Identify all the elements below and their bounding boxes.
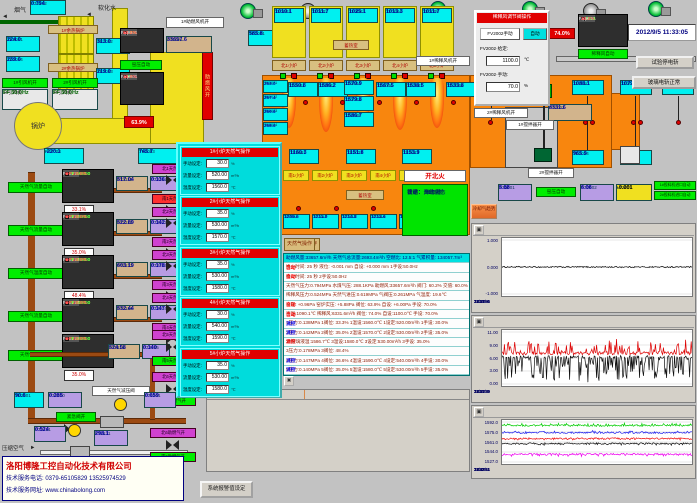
fv2002-manual-button[interactable]: FV2002手动 (480, 28, 520, 40)
setpoint-field[interactable]: 1100.0 (486, 56, 520, 66)
pt3001-indicator: PT30015.88 (498, 184, 532, 201)
manual-set-label: 手动设定: (183, 361, 202, 371)
south-te-indicator: TE20441212.6 (370, 214, 397, 229)
dilution-valve-popup: 稀释风调节阀操作 FV2002手动 自动 FV2002·给定: 1100.0 ℃… (474, 10, 550, 106)
temp-set-field[interactable]: 1590.0 (206, 334, 229, 343)
pv-row: OP78.0% (121, 73, 125, 81)
te2008-indicator: TE20081533.8 (446, 82, 476, 97)
status-row: 天然气压力:0.794MPa 水煤气压: 288.1KPa 助燃风:33657.… (284, 282, 469, 291)
dilution-fan2-on-label: 2#稀释风机开 (474, 108, 528, 118)
valve-icon (166, 440, 179, 450)
temp-set-unit: ℃ (231, 183, 236, 193)
chart-toolbar-icon[interactable]: ▣ (474, 225, 484, 235)
red-dot (631, 120, 636, 125)
red-dot (488, 120, 493, 125)
gas-pipe (0, 20, 58, 24)
y-tick-label: 9.00 (489, 343, 498, 348)
chamber-te-indicator: TE30031025.1 (348, 8, 378, 23)
fan-icon (240, 3, 256, 19)
ft2001-indicator: FT200133657.6 (166, 36, 212, 53)
nav-button[interactable]: 系统报警值设定 (200, 481, 253, 498)
operation-buttons: 稀释风操作引风机操作窑压操作玻璃液位操作天然气操作 (284, 238, 470, 251)
chart-toolbar-icon[interactable]: ▣ (474, 407, 484, 417)
x-tick-label: 11:32:51 (474, 467, 490, 472)
dilution-valve-position: 74.0% (549, 28, 575, 39)
gas-control-loops: 天然气流量自动 FV2211 SPT 1560.0 SPF 520.00 OP … (0, 168, 200, 340)
flow-indicator: FT2211517.04 (116, 176, 148, 191)
manual-set-field[interactable]: 30.0 (206, 310, 229, 319)
scada-furnace-screen: 助燃风开 烟气 ◄ 软化水 ◄ PT22020.794 1#余热锅炉 2#余热锅… (0, 0, 697, 503)
te2007-indicator: TE20071538.5 (406, 82, 436, 97)
ft2002-indicator: FT20028331.6 (548, 104, 592, 121)
flow-set-field[interactable]: 520.00 (206, 171, 229, 180)
regenerator-chamber: TE30011010.1 北1小炉 (272, 6, 306, 86)
temp-set-unit: ℃ (231, 233, 236, 243)
alarm-toolbar: ▤≡?▦▦▦▦⇄○⇅✖ (284, 376, 470, 388)
panel-title: 2#小炉天然气操作 (182, 198, 278, 207)
temp-set-unit: ℃ (231, 385, 236, 395)
setpoint-unit: ℃ (524, 57, 529, 63)
south-burner: 南3小炉 TE20431214.8 (341, 170, 368, 230)
dilution-auto-label: 稀释风自动 (578, 49, 628, 59)
flow-indicator: FT2213603.19 (116, 262, 148, 277)
status-row: 稀释风压力:0.524MPa 天然气进压:0.619MPa 气阀压:0.261M… (284, 291, 469, 300)
pt2003-indicator: PT2003-220.1 (44, 148, 84, 164)
fv2002-auto-button[interactable]: 自动 (523, 28, 547, 40)
status-row: 1压力:0.138MPa 1阀位: 33.3% 1温设:1560.0℃ 1设定:… (284, 319, 469, 328)
chamber-te-indicator: TE30011010.1 (274, 8, 304, 23)
red-dot (451, 100, 456, 105)
south-te-indicator: TE20431214.8 (341, 214, 368, 229)
y-tick-label: 1544.0 (485, 449, 498, 454)
fire-status-panel: 状态：自动状态自动：开北火 设定： 1175 秒计时： 269 秒 (402, 184, 468, 236)
south-te-indicator: TE20421211.0 (312, 214, 339, 229)
x-tick-label: 11:31:56 (474, 299, 490, 304)
temperature-plot (502, 420, 692, 464)
pv-row: OP70.0% (579, 15, 583, 23)
emergency-valve-open-label: 紧急阀开 (56, 412, 96, 422)
pv3001-controller: PV3001 FF80.2%OP80.1% (120, 28, 164, 53)
south-burner-label: 南3小炉 (341, 170, 367, 181)
status-row: 窑压: +0.96Pa 窑炉实压: +5.88Pa 阀位: 63.9% 自设: … (284, 301, 469, 310)
manual-set-label: 手动设定: (183, 159, 202, 169)
te-indicator: TE2072267.4 (263, 94, 288, 107)
flow-set-unit: m³/h (231, 322, 239, 332)
feeder2-auto-label: 2#投料机进口自动 (654, 191, 696, 200)
regenerator-chamber: TE30041013.3 北4小炉 (383, 6, 417, 86)
te2024-indicator: TE2024965.9 (572, 150, 604, 165)
y-tick-label: 1.000 (487, 238, 498, 243)
manual-label: FV2002·手动: (480, 72, 508, 78)
id-fan1-on-label: 1#引风机开 (2, 78, 48, 88)
level-trend-chart: ▤|◀◀◀▶▶▶|✖⊕↔▣ 1.0000.000-1.000 12/09/041… (471, 223, 696, 313)
datetime-display: 2012/9/5 11:33:05 (628, 24, 696, 41)
bottom-nav-buttons: 窑炉控制系统配料控制系统天然气PID参数设定稀释风PID参数设定窑压PID参数设… (200, 481, 697, 500)
status-row: 3#玻璃液温:1586.7℃ 3温设:1580.0℃ 3设定:530.00m³/… (284, 338, 469, 347)
te2021-indicator: TE20211160.3 (289, 149, 319, 164)
temp-set-field[interactable]: 1570.0 (206, 233, 229, 242)
company-info: 洛阳博隆工控自动化技术有限公司 技术服务电话: 0379-65105829 13… (2, 456, 184, 501)
temp-set-label: 温度设定: (183, 233, 202, 243)
manual-set-field[interactable]: 35.0 (206, 361, 229, 370)
temp-set-field[interactable]: 1560.0 (206, 183, 229, 192)
trend-button[interactable]: 冷却气趋势 (471, 204, 497, 219)
stirrer2-on-label: 2#搅拌器开 (528, 168, 574, 178)
peephole-box (620, 146, 640, 164)
alarm-toolbar-icon[interactable]: ✖ (284, 376, 294, 386)
te2064-indicator: TE2064239.0 (6, 56, 40, 72)
operation-button[interactable]: 天然气操作 (284, 238, 315, 251)
waste-heat-boiler-1 (58, 16, 94, 54)
loop5-controller: FV2215 SPT 1580.0 SPF 530.00 OP 20.0% (62, 334, 114, 368)
probe-line (678, 96, 679, 120)
regenerator-chamber: TE30051011.7 北5小炉 (420, 6, 454, 86)
pt2202-indicator: PT22020.794 (30, 0, 66, 15)
id-fan2-on-label: 2#引风机开 (52, 78, 98, 88)
lt2001-indicator: LT2001-0.001 (616, 184, 652, 201)
panel-title: 5#小炉天然气操作 (182, 350, 278, 359)
te2003-indicator: TE20031579.8 (344, 96, 374, 111)
kiln-pressure-auto-label-2: 窑压自动 (536, 187, 576, 197)
chamber-te-indicator: TE30041013.3 (385, 8, 415, 23)
te2004-indicator: TE20041570.9 (344, 80, 374, 95)
north-burner-label: 北4小炉 (383, 60, 417, 71)
status-row: 助燃风量:33657.6m³/h 天然气总流量:2693.4m³/h 空燃比: … (284, 254, 469, 263)
loop-controller: FV2213 SPT 1580.0 SPF 530.00 OP 20.0% (62, 255, 114, 289)
manual-field[interactable]: 70.0 (486, 82, 520, 92)
manual-set-unit: % (231, 310, 235, 320)
te2061-indicator: TE2061224.0 (6, 36, 40, 52)
south-burner: 南4小炉 TE20441212.6 (370, 170, 397, 230)
status-row: 2压力:0.142MPa 2阀位: 35.0% 2温设:1570.0℃ 2设定:… (284, 329, 469, 338)
manual-set-label: 手动设定: (183, 260, 202, 270)
flue-arrow-icon: ◄ (2, 14, 8, 20)
x-tick-label: 11:31:29 (474, 389, 490, 394)
north-burner-label: 北2小炉 (309, 60, 343, 71)
regenerator-left-temps: TE2071263.0TE2072267.4TE2073269.6TE20742… (263, 80, 288, 138)
north-burner-label: 北1小炉 (272, 60, 306, 71)
manual-unit: % (524, 83, 528, 88)
flow-set-field[interactable]: 530.00 (206, 272, 229, 281)
pressure-plot (502, 330, 692, 386)
flow-set-unit: m³/h (231, 171, 239, 181)
manual-set-field[interactable]: 35.0 (206, 260, 229, 269)
soft-water-label: 软化水 (98, 3, 116, 12)
pv-row: OP80.1% (121, 29, 125, 37)
id-fan2-status: 2#引风机FF 50.0Hz (52, 89, 98, 110)
pressure-trend-chart: ▤|◀◀◀▶▶▶|✖⊕↔▣ 11.009.006.003.000.00 12/0… (471, 315, 696, 403)
south-burner-label: 南4小炉 (370, 170, 396, 181)
south-te-indicator: TE20411209.6 (283, 214, 310, 229)
loop-auto-label: 天然气流量自动 (8, 225, 64, 236)
level-plot (502, 238, 692, 296)
temp-set-label: 温度设定: (183, 334, 202, 344)
te2023-indicator: TE20231153.9 (402, 149, 432, 164)
manual-set-label: 手动设定: (183, 310, 202, 320)
loop-auto-label: 天然气温度自动 (8, 268, 64, 279)
manual-set-field[interactable]: 35.0 (206, 209, 229, 218)
burner-gas-panel: 1#小炉天然气操作 手动设定: 30.0 % 流量设定: 520.00 m³/h… (180, 146, 280, 195)
y-tick-label: 1592.0 (485, 420, 498, 425)
temp-set-field[interactable]: 1580.0 (206, 385, 229, 394)
ft2215-indicator: FT2215524.58 (108, 344, 140, 359)
chamber-te-indicator: TE30051011.7 (422, 8, 452, 23)
pv2002-controller: PV2002 PF1090.1SP1100.0OP70.0% (578, 14, 628, 47)
panel-title: 1#小炉天然气操作 (182, 148, 278, 157)
kiln-pressure-auto-label: 窑压自动 (120, 60, 162, 70)
stirrer-base (534, 148, 552, 162)
y-tick-label: 11.00 (487, 330, 498, 335)
manual-set-label: 手动设定: (183, 209, 202, 219)
south-burner: 南1小炉 TE20411209.6 (283, 170, 310, 230)
burner-gas-popup: 1#小炉天然气操作 手动设定: 30.0 % 流量设定: 520.00 m³/h… (176, 142, 282, 398)
compressed-air-label: 压缩空气 (2, 444, 24, 452)
y-tick-label: 0.000 (487, 265, 498, 270)
status-row: 换火时间: 25 秒 液位: -0.001 mm 自设: +0.000 mm 1… (284, 263, 469, 272)
gas-regulator-label: 天然气减压阀 (92, 386, 150, 396)
south-burner-label: 南1小炉 (283, 170, 309, 181)
temperature-trend-chart: ⚷▤|◀◀◀▶▶▶|✖⊕↔▣ 1592.01575.01561.01544.01… (471, 405, 696, 479)
red-dot (377, 100, 382, 105)
manual-set-unit: % (231, 260, 235, 270)
gas-loop: 天然气温度自动 FV2213 SPT 1580.0 SPF 530.00 OP … (0, 254, 200, 297)
status-row: 4压力:0.147MPa 4阀位: 36.6% 4温设:1590.0℃ 4设定:… (284, 356, 469, 365)
te-indicator: TE2074268.6 (263, 122, 288, 135)
flow-set-unit: m³/h (231, 272, 239, 282)
gas-loop: 天然气流量自动 FV2212 SPT 1570.0 SPF 530.00 OP … (0, 211, 200, 254)
status-row: 换火时间: 25 秒 2手设:50.0Hz 自动 (284, 273, 469, 282)
flow-set-label: 流量设定: (183, 322, 202, 332)
process-status-panel: 助燃风量:33657.6m³/h 天然气总流量:2693.4m³/h 空燃比: … (283, 253, 470, 376)
flow-set-field[interactable]: 540.00 (206, 322, 229, 331)
flow-set-label: 流量设定: (183, 221, 202, 231)
damper-position-value: 63.9% (124, 116, 154, 128)
te2022-indicator: TE20221151.8 (346, 149, 376, 164)
alarm-table: 故障点故障原因（供参考） 1698 2012/09/0511:17:21 3#小… (206, 389, 470, 472)
flow-set-label: 流量设定: (183, 171, 202, 181)
comb-fan-on-label: 1#助燃风机开 (166, 17, 224, 28)
dilution-fan1-on-label: 1#稀释风机开 (416, 56, 470, 66)
loop-controller: FV2211 SPT 1560.0 SPF 520.00 OP 20.0% (62, 169, 114, 203)
south-burner: 南2小炉 TE20421211.0 (312, 170, 339, 230)
loop-auto-label: 天然气流量自动 (8, 311, 64, 322)
fire-direction-indicator: 开北火 (404, 170, 466, 182)
burner-gas-panel: 5#小炉天然气操作 手动设定: 35.0 % 流量设定: 530.00 m³/h… (180, 348, 280, 397)
y-tick-label: 3.00 (489, 368, 498, 373)
chamber-te-indicator: TE30021011.7 (311, 8, 341, 23)
flow-set-field[interactable]: 530.00 (206, 373, 229, 382)
combustion-air-bar: 助燃风开 (202, 52, 213, 120)
whb2-label: 2#余热锅炉 (48, 63, 98, 72)
te2201-indicator: TE220190.6 (14, 392, 44, 408)
red-dot (414, 100, 419, 105)
flow-set-field[interactable]: 530.00 (206, 221, 229, 230)
setpoint-label: FV2002·给定: (480, 46, 508, 52)
y-tick-label: -1.000 (486, 291, 498, 296)
south-burner-label: 南2小炉 (312, 170, 338, 181)
regenerator-label: 蓄热室 (333, 40, 369, 50)
te2010-indicator: TE20101088.1 (572, 80, 604, 95)
temp-set-unit: ℃ (231, 334, 236, 344)
trend-buttons: 窑温度趋势烟道趋势助燃风趋势稀释风趋势窑压趋势液位趋势天然气趋势冷却气趋势 (471, 204, 697, 220)
fan-icon (648, 1, 664, 17)
y-tick-label: 1527.0 (485, 459, 498, 464)
test-power-cut-button[interactable]: 试验停电斩 (636, 56, 694, 69)
compressed-air-arrow-icon: ► (30, 445, 35, 451)
panel-title: 4#小炉天然气操作 (182, 299, 278, 308)
te-indicator: TE2071263.0 (263, 80, 288, 93)
status-row: 5压力:0.140MPa 5阀位: 35.0% 5温设:1580.0℃ 5设定:… (284, 366, 469, 375)
pv2001-controller: PV2001 PF5.88SP6.00OP78.0% (120, 72, 164, 105)
loop-controller: FV2212 SPT 1570.0 SPF 530.00 OP 20.0% (62, 212, 114, 246)
burner-gas-panel: 3#小炉天然气操作 手动设定: 35.0 % 流量设定: 530.00 m³/h… (180, 247, 280, 296)
loop5-valve-position: 35.0% (64, 370, 94, 381)
flow-set-label: 流量设定: (183, 373, 202, 383)
gas-loop: 天然气流量自动 FV2211 SPT 1560.0 SPF 520.00 OP … (0, 168, 200, 211)
pt2200-indicator: PT22000.285 (48, 392, 82, 408)
red-dot (340, 100, 345, 105)
red-dot (303, 100, 308, 105)
te2006-indicator: TE20061567.5 (376, 82, 406, 97)
status-row: 窑温:1090.1℃ 稀释风:6331.6m³/h 阀位: 74.0% 自设:1… (284, 310, 469, 319)
ft2201-indicator: FT22010.659 (144, 392, 176, 408)
te2001-indicator: TE20011550.8 (288, 82, 318, 97)
y-tick-label: 1561.0 (485, 440, 498, 445)
chart-toolbar-icon[interactable]: ▣ (474, 317, 484, 327)
manual-set-unit: % (231, 159, 235, 169)
north-burner-label: 北3小炉 (346, 60, 380, 71)
stirrer1-on-label: 1#搅拌器开 (506, 120, 554, 130)
temp-set-label: 温度设定: (183, 385, 202, 395)
te2005-indicator: TE20051586.7 (344, 112, 374, 127)
temp-set-label: 温度设定: (183, 284, 202, 294)
manual-set-unit: % (231, 209, 235, 219)
flow-indicator: FT2212522.89 (116, 219, 148, 234)
north-aux-valve-label: 北6助燃气开 (150, 428, 196, 438)
pt2121-indicator: PT21210.524 (34, 426, 66, 442)
feeder1-auto-label: 1#投料机进口自动 (654, 181, 696, 190)
boiler-drum: 锅炉 (14, 102, 62, 150)
status-row: 3压力:0.178MPa 3阀位: 48.4% (284, 347, 469, 356)
flue-gas-label: 烟气 (14, 5, 26, 14)
loop-auto-label: 天然气流量自动 (8, 182, 64, 193)
popup-title: 稀释风调节阀操作 (477, 13, 547, 23)
regulator-valve-icon (114, 398, 127, 411)
y-tick-label: 1575.0 (485, 430, 498, 435)
flow-set-unit: m³/h (231, 221, 239, 231)
manual-set-field[interactable]: 30.0 (206, 159, 229, 168)
burner-gas-panel: 2#小炉天然气操作 手动设定: 35.0 % 流量设定: 530.00 m³/h… (180, 196, 280, 245)
red-dot (638, 120, 643, 125)
temp-set-field[interactable]: 1580.0 (206, 284, 229, 293)
air-meter-icon (68, 424, 81, 437)
loop-controller: FV2214 SPT 1590.0 SPF 540.00 OP 20.0% (62, 298, 114, 332)
temp-set-label: 温度设定: (183, 183, 202, 193)
y-tick-label: 6.00 (489, 356, 498, 361)
te-indicator: TE2073269.6 (263, 108, 288, 121)
flow-set-label: 流量设定: (183, 272, 202, 282)
regenerator-label-2: 蓄热室 (346, 190, 384, 200)
panel-title: 3#小炉天然气操作 (182, 249, 278, 258)
te2053-indicator: TE2053745.7 (138, 148, 178, 164)
flow-meter-block (100, 416, 124, 428)
temp-set-unit: ℃ (231, 284, 236, 294)
manual-set-unit: % (231, 361, 235, 371)
pt2002-indicator: PT20026.06 (580, 184, 614, 201)
glass-power-normal-button[interactable]: 玻璃电斩正常 (632, 76, 696, 89)
y-tick-label: 0.00 (489, 381, 498, 386)
whb1-label: 1#余热锅炉 (48, 25, 98, 34)
ft2131-indicator: FT2131298.1 (94, 430, 128, 446)
burner-gas-panel: 4#小炉天然气操作 手动设定: 30.0 % 流量设定: 540.00 m³/h… (180, 297, 280, 346)
flow-indicator: FT2214532.44 (116, 305, 148, 320)
red-dot (676, 120, 681, 125)
flow-set-unit: m³/h (231, 373, 239, 383)
